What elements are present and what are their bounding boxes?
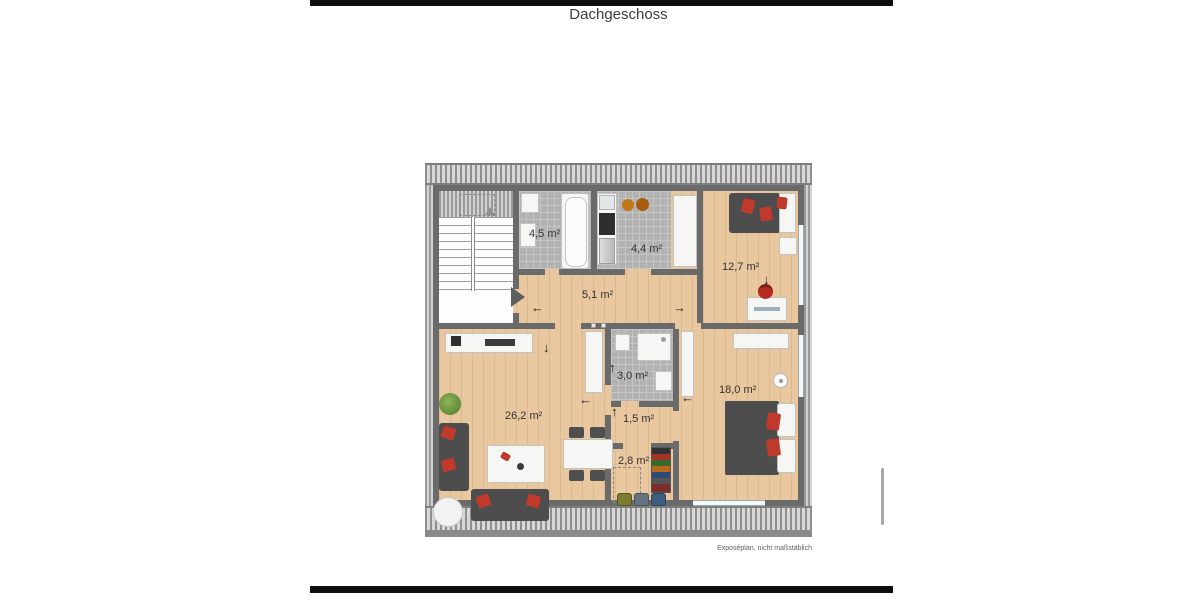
door-arrow-hall-small: ↑ xyxy=(611,405,618,418)
coffee-table-deco-2 xyxy=(517,463,524,470)
wall-bath-bottom-3 xyxy=(639,401,673,407)
roof-hatch-top xyxy=(425,163,812,185)
dining-chair-2 xyxy=(590,427,605,438)
dining-chair-1 xyxy=(569,427,584,438)
room-label-storage: 2,8 m² xyxy=(618,455,649,467)
wardrobe-left xyxy=(585,331,603,393)
washing-machine xyxy=(521,193,539,213)
wall-switch-1 xyxy=(591,323,596,328)
refrigerator xyxy=(599,238,615,264)
stair-rail xyxy=(471,217,475,291)
wall-mid-1 xyxy=(433,323,555,329)
storage-wardrobe xyxy=(651,447,671,493)
corner-shelf xyxy=(779,237,797,255)
shower xyxy=(637,333,671,361)
window-bedroom-small xyxy=(798,225,804,305)
door-arrow-bath: ↑ xyxy=(609,361,616,374)
kitchen-sink xyxy=(599,195,615,210)
wall-bath-bottom-1 xyxy=(519,269,545,275)
wall-switch-2 xyxy=(601,323,606,328)
wall-column-right-2 xyxy=(673,441,679,500)
page-title: Dachgeschoss xyxy=(425,6,812,23)
room-label-bedroom-large: 18,0 m² xyxy=(719,384,756,396)
plan-caption: Exposéplan, nicht maßstäblich xyxy=(560,545,812,552)
bath-sink xyxy=(655,371,672,391)
bed-large-cushion-1 xyxy=(766,412,781,431)
window-bedroom-large xyxy=(798,335,804,397)
roof-edge-bar xyxy=(425,530,812,537)
bed-large-pillow-2 xyxy=(777,439,796,473)
room-label-bedroom-small: 12,7 m² xyxy=(722,261,759,273)
wall-bedroom-small-left xyxy=(697,191,703,323)
dresser xyxy=(733,333,789,349)
dining-chair-3 xyxy=(569,470,584,481)
bathtub xyxy=(561,193,589,269)
bottom-frame-bar xyxy=(310,586,893,593)
dining-table xyxy=(563,439,613,469)
wall-bath-bottom-2 xyxy=(559,269,625,275)
room-label-hallway: 5,1 m² xyxy=(582,289,613,301)
dining-chair-4 xyxy=(590,470,605,481)
coffee-table xyxy=(487,445,545,483)
shower-drain xyxy=(661,337,666,342)
room-label-bath: 3,0 m² xyxy=(617,370,648,382)
bed-small xyxy=(729,193,781,233)
window-bedroom-large-bottom xyxy=(693,500,765,506)
door-arrow-living-entry: ↓ xyxy=(543,341,550,354)
bed-large-cushion-2 xyxy=(766,438,781,456)
kitchen-plant-2 xyxy=(636,198,649,211)
door-arrow-desk: ↓ xyxy=(763,273,770,286)
room-label-kitchen: 4,4 m² xyxy=(631,243,662,255)
plant xyxy=(439,393,461,415)
roof-hatch-left xyxy=(425,185,433,506)
stair-treads xyxy=(439,217,513,291)
desk-monitor xyxy=(754,307,780,311)
wall-stair-right-stub xyxy=(513,313,519,323)
basket-3 xyxy=(651,493,666,506)
hall-wardrobe xyxy=(673,195,697,267)
wardrobe-right xyxy=(681,331,694,397)
basket-1 xyxy=(617,493,632,506)
vertical-scrollbar-thumb[interactable] xyxy=(881,468,884,525)
room-label-hall-small: 1,5 m² xyxy=(623,413,654,425)
door-arrow-bedroom-large: ← xyxy=(681,391,694,404)
sideboard-item-2 xyxy=(485,339,515,346)
basket-2 xyxy=(634,493,649,506)
kitchen-plant-1 xyxy=(622,199,634,211)
entrance-door-icon xyxy=(511,287,525,307)
room-label-living: 26,2 m² xyxy=(505,410,542,422)
bed-small-cushion-2 xyxy=(759,206,773,222)
door-arrow-living: ← xyxy=(531,301,544,314)
wall-column-left-1 xyxy=(605,329,611,385)
door-arrow-bedroom-small: → xyxy=(673,301,686,314)
floorplan: ← → ↓ ↑ ↑ ← ← ↓ 4,5 m² 4,4 m² 12,7 m² 5,… xyxy=(425,163,812,537)
door-arrow-hall-living: ← xyxy=(579,393,592,406)
sideboard-item-1 xyxy=(451,336,461,346)
round-table xyxy=(433,497,463,527)
toilet xyxy=(615,334,630,351)
roof-hatch-right xyxy=(804,185,812,506)
bed-small-cushion-3 xyxy=(776,197,787,210)
room-label-bath-small: 4,5 m² xyxy=(529,228,560,240)
wall-mid-3 xyxy=(701,323,804,329)
stair-direction-arrow xyxy=(485,207,495,215)
floor-lamp xyxy=(773,373,788,388)
wall-kitchen-bottom xyxy=(651,269,703,275)
stove xyxy=(599,213,615,235)
wall-column-right-1 xyxy=(673,329,679,411)
wall-outer-top xyxy=(433,185,804,191)
